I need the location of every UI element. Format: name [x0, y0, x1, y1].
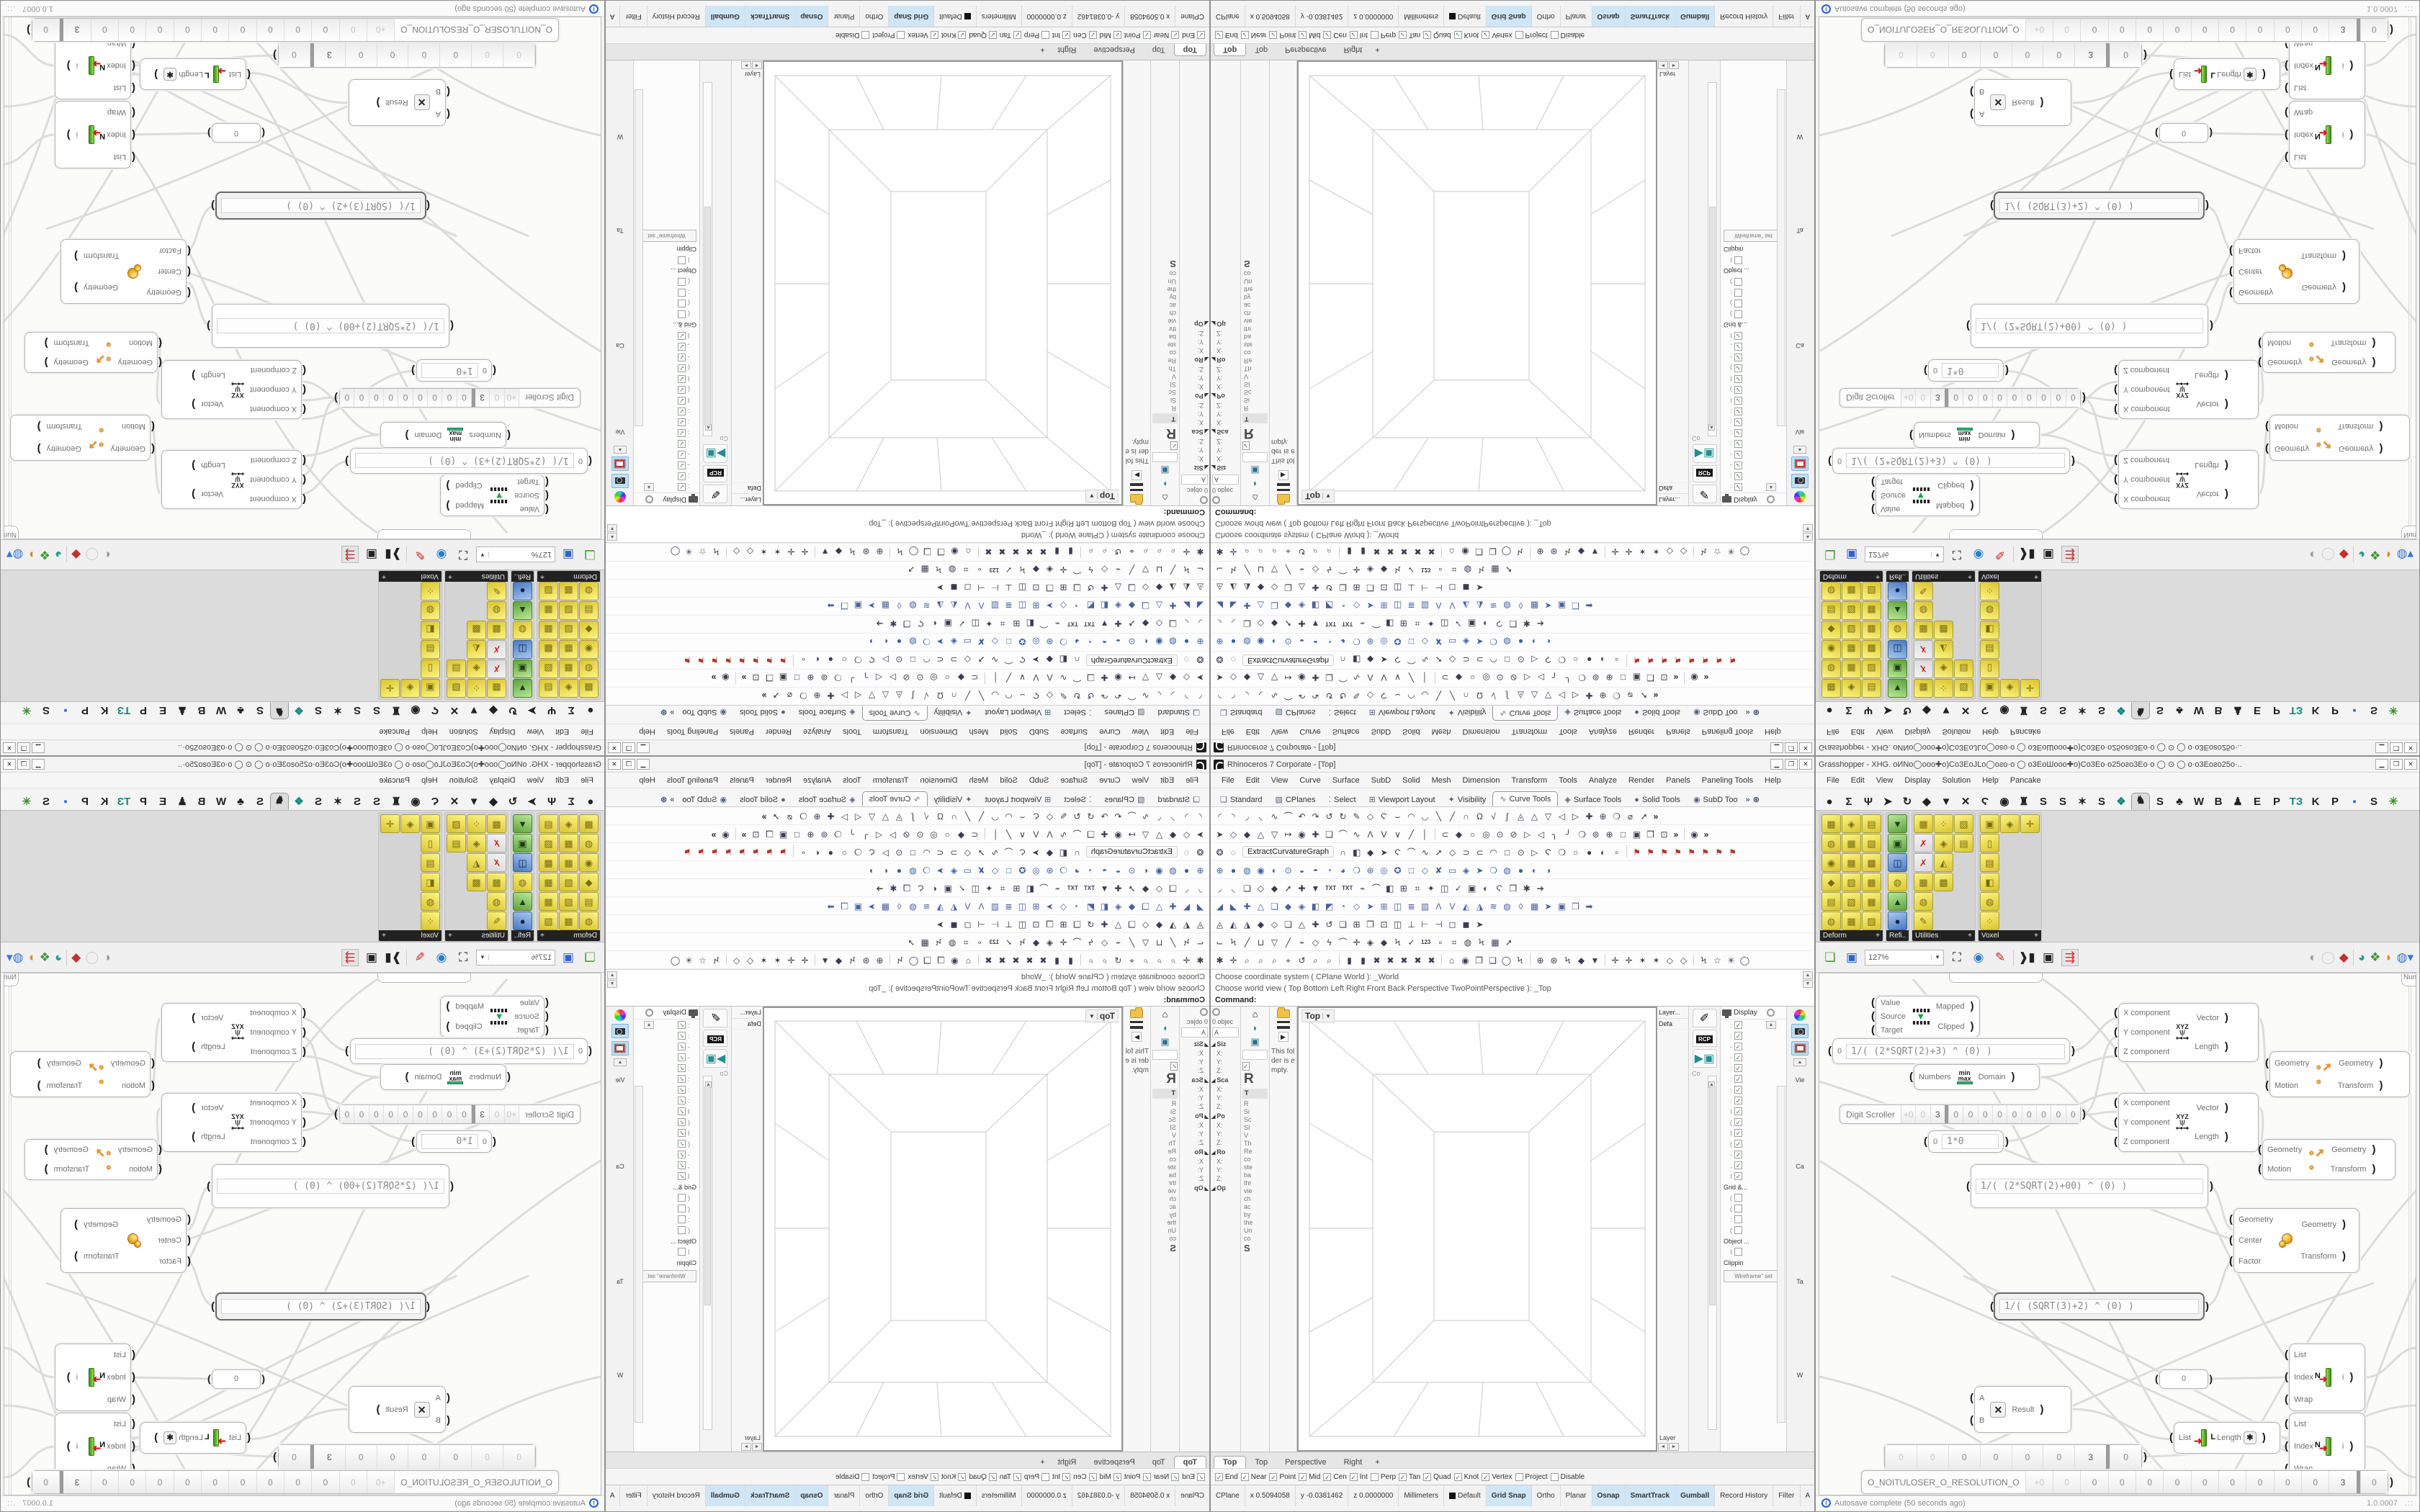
input-b[interactable]: B [431, 86, 445, 96]
output-length[interactable]: Length ✱ [2213, 1431, 2261, 1445]
maximize-button[interactable]: ❐ [622, 742, 635, 753]
gh-plugin-tab-icon[interactable]: W [2190, 796, 2208, 810]
menu-item-view[interactable]: View [1871, 726, 1899, 738]
gh-plugin-tab-icon[interactable]: TЗ [2287, 702, 2305, 716]
help-search-field[interactable] [1242, 1050, 1268, 1060]
palette-icon[interactable]: ◍ [1821, 582, 1841, 600]
toolbar-icon[interactable]: ⌁ [1296, 564, 1308, 577]
palette-icon[interactable]: ✗ [1914, 834, 1933, 852]
osnap-vertex[interactable]: ✓Vertex [1482, 1473, 1512, 1481]
toolbar-icon[interactable]: ⌒ [1370, 618, 1382, 631]
toolbar-icon[interactable]: ⌣ [1391, 809, 1404, 823]
toolbar-icon[interactable]: ▽ [1139, 672, 1152, 685]
boxedit-axis-field[interactable]: X: [1180, 1049, 1209, 1058]
gear-icon[interactable] [1767, 1009, 1775, 1017]
toolbar-icon[interactable]: ➚ [1433, 845, 1445, 859]
toolbar-icon[interactable]: ☆ [696, 546, 709, 559]
input-geometry[interactable]: Geometry [114, 1145, 157, 1155]
palette-icon[interactable]: ▩ [539, 853, 558, 872]
toolbar-icon[interactable]: ✚ [1241, 899, 1253, 913]
rhino-tab-standard[interactable]: ❏Standard [1151, 706, 1206, 719]
side-tab-view[interactable]: Vie [607, 428, 633, 436]
toolbar-icon[interactable]: ⊛ [1364, 863, 1376, 877]
toolbar-icon[interactable]: ⚑ [709, 845, 721, 859]
zero-panel[interactable]: 0 [212, 123, 261, 143]
digit-cell[interactable]: 0 [2066, 389, 2080, 407]
gh-plugin-tab-icon[interactable]: K [2306, 702, 2325, 716]
zoom-extents-icon[interactable]: ⛶ [454, 949, 472, 966]
toolbar-icon[interactable]: TXT [1340, 881, 1355, 895]
menu-item-help[interactable]: Help [1760, 775, 1786, 786]
toolbar-icon[interactable]: ⊙ [1515, 845, 1527, 859]
toolbar-icon[interactable]: ✚ [1309, 582, 1322, 595]
checkbox[interactable] [678, 1248, 686, 1256]
toolbar-icon[interactable]: ∿ [1268, 690, 1281, 703]
toolbar-icon[interactable]: ◆ [1030, 935, 1042, 949]
boxedit-section-op[interactable]: Op [1211, 319, 1240, 329]
toolbar-icon[interactable]: Ϟ [1180, 935, 1193, 949]
toolbar-icon[interactable]: ◞ [1167, 809, 1179, 823]
input-geometry[interactable]: Geometry [2234, 287, 2277, 297]
toolbar-icon[interactable]: ◆ [1282, 899, 1294, 913]
toolbar-icon[interactable]: ● [825, 845, 837, 859]
menu-item-file[interactable]: File [1180, 775, 1204, 786]
expression-code[interactable]: 1/( (2*SQRT(2)+00) ^ (0) ) [217, 1179, 444, 1194]
digit-cell[interactable]: 0 [2136, 1471, 2163, 1493]
digit-cell[interactable]: 0 [279, 1445, 310, 1469]
display-mode-box[interactable]: Wireframe" set [1724, 230, 1783, 242]
toolbar-icon[interactable]: Ϟ [1561, 953, 1574, 967]
boxedit-section-siz[interactable]: Siz [1211, 1039, 1240, 1049]
display-option-row[interactable]: ( [634, 1225, 699, 1236]
toolbar-icon[interactable]: ◯ [669, 546, 681, 559]
display-blob-blue-icon[interactable]: ◍▾ [6, 950, 23, 965]
palette-icon[interactable]: ▤ [421, 853, 440, 872]
toolbar-icon[interactable]: ▣ [1631, 672, 1643, 685]
menu-item-mesh[interactable]: Mesh [964, 726, 993, 738]
toolbar-icon[interactable]: Ϛ [1016, 654, 1028, 667]
display-option-row[interactable]: :✓ [634, 1084, 699, 1095]
toolbar-icon[interactable]: ⊣ [975, 582, 987, 595]
menu-item-subd[interactable]: SubD [1024, 726, 1054, 738]
toolbar-icon[interactable]: ◆ [1255, 582, 1267, 595]
toolbar-icon[interactable]: ⚑ [750, 654, 762, 667]
toolbar-icon[interactable]: ≋ [920, 600, 933, 613]
toolbar-icon[interactable]: ⌀ [784, 809, 796, 823]
side-tab-ta[interactable]: Ta [607, 1278, 633, 1285]
toolbar-icon[interactable]: ∫ [907, 690, 919, 703]
toolbar-icon[interactable]: ✶ [758, 953, 770, 967]
toolbar-icon[interactable]: ◌ [1180, 845, 1193, 859]
toolbar-icon[interactable]: ◟ [1180, 881, 1193, 895]
toolbar-icon[interactable]: ● [893, 636, 905, 649]
rhino-tab-surface-tools[interactable]: ◈Surface Tools [792, 706, 862, 719]
osnap-vertex[interactable]: ✓Vertex [907, 32, 938, 40]
toolbar-icon[interactable]: » [1652, 809, 1660, 823]
toolbar-icon[interactable]: ⊙ [1126, 636, 1138, 649]
palette-icon[interactable]: ⁘ [1934, 679, 1953, 698]
checkbox[interactable] [1734, 1205, 1742, 1212]
checkbox[interactable]: ✓ [1113, 32, 1121, 40]
menu-item-analyze[interactable]: Analyze [1584, 726, 1622, 738]
toolbar-icon[interactable]: ◇ [1044, 809, 1056, 823]
toolbar-icon[interactable]: ☆ [1711, 546, 1724, 559]
toolbar-icon[interactable]: Ϟ [1698, 953, 1710, 967]
toolbar-icon[interactable]: ⊕ [811, 690, 823, 703]
digit-cell[interactable]: 0 [2136, 19, 2163, 41]
palette-icon[interactable]: ⁘ [421, 582, 440, 600]
toolbar-icon[interactable]: ✖ [1384, 546, 1397, 559]
toolbar-icon[interactable]: ❐ [763, 827, 776, 841]
toolbar-icon[interactable]: ◆ [1378, 935, 1390, 949]
digit-cell[interactable]: 0 [174, 19, 202, 41]
boxedit-axis-field[interactable]: Z: [1180, 401, 1209, 410]
toolbar-icon[interactable]: ❏ [1126, 917, 1138, 931]
command-prompt[interactable]: Command: [610, 994, 1205, 1006]
rhino-tab-viewport-layout[interactable]: ⊞Viewport Layout [1363, 706, 1442, 719]
side-tab-camera[interactable]: Ca [607, 1163, 633, 1170]
checkbox[interactable]: ✓ [1062, 1473, 1070, 1481]
digit-cell[interactable]: 0 [1885, 43, 1917, 67]
expression-component-3-selected[interactable]: 1/( (SQRT(3)+2) ^ (0) ) [215, 1292, 426, 1320]
help-checkbox[interactable]: ✓ [1242, 1062, 1250, 1071]
gh-plugin-tab-icon[interactable]: ✳ [17, 702, 36, 717]
boxedit-axis-field[interactable]: X: [1211, 1121, 1240, 1130]
menu-item-edit[interactable]: Edit [550, 726, 574, 738]
toolbar-icon[interactable]: ◇ [1268, 582, 1281, 595]
digit-cell[interactable]: 0 [257, 19, 284, 41]
osnap-point[interactable]: ✓Point [1269, 32, 1296, 40]
checkbox[interactable]: ✓ [678, 1064, 686, 1072]
toolbar-icon[interactable]: ∩ [1337, 654, 1349, 667]
viewport-tab-top[interactable]: Top [1174, 44, 1206, 56]
checkbox[interactable]: ✓ [989, 1473, 997, 1481]
toolbar-icon[interactable]: ∿ [1057, 827, 1070, 841]
vector-xyz-component-1[interactable]: X component Y component Z component XYZ\… [2118, 450, 2259, 509]
gh-plugin-tab-icon[interactable]: S [2365, 702, 2383, 716]
toolbar-icon[interactable]: TXT [1065, 881, 1080, 895]
toolbar-icon[interactable]: ◎ [928, 827, 940, 841]
expand-button[interactable]: ▶ [1132, 1032, 1142, 1042]
palette-label[interactable]: Utilities+ [445, 571, 508, 582]
toolbar-icon[interactable]: ◟ [1153, 690, 1165, 703]
boxedit-axis-field[interactable]: X: [1180, 1121, 1209, 1130]
toolbar-icon[interactable]: ▮ [1051, 953, 1063, 967]
toolbar-icon[interactable]: ⌁ [1052, 618, 1064, 631]
toolbar-icon[interactable]: ⊡ [750, 827, 762, 841]
osnap-end[interactable]: ✓End [1182, 1473, 1205, 1481]
vertical-scrollbar[interactable]: ▲ [703, 1076, 712, 1430]
toolbar-icon[interactable]: ⊥ [1003, 917, 1015, 931]
menu-item-render[interactable]: Render [1623, 726, 1659, 738]
toolbar-icon[interactable]: ◁ [873, 672, 885, 685]
toolbar-icon[interactable]: ➔ [1534, 881, 1546, 895]
toolbar-icon[interactable]: ◔ [1085, 636, 1097, 649]
toolbar-icon[interactable]: ⌕ [1268, 546, 1281, 559]
toolbar-icon[interactable]: ➤ [1030, 654, 1042, 667]
digit-cell[interactable]: 0 [384, 389, 398, 407]
checkbox[interactable]: ✓ [678, 1161, 686, 1169]
boxedit-axis-field[interactable]: Y: [1180, 338, 1209, 346]
toolbar-icon[interactable]: ◇ [1153, 618, 1165, 631]
digit-scroller-upper[interactable]: 00000030 [1884, 1444, 2142, 1470]
toolbar-icon[interactable]: ◍ [1241, 863, 1253, 877]
scroll-up-button[interactable]: ▲ [1766, 1021, 1776, 1029]
checkbox[interactable]: ✓ [1423, 32, 1431, 40]
toolbar-icon[interactable]: ◇ [1309, 564, 1322, 577]
scroller-thumb[interactable] [60, 19, 63, 41]
output-geometry[interactable]: Geometry [42, 444, 87, 454]
digit-cell[interactable]: 3 [2074, 43, 2106, 67]
menu-item-file[interactable]: File [575, 726, 599, 738]
camera-panel-icon[interactable] [1791, 474, 1809, 488]
checkbox[interactable]: ✓ [1171, 1473, 1179, 1481]
toolbar-icon[interactable]: ▣ [1556, 899, 1568, 913]
toolbar-icon[interactable]: ╲ [1433, 809, 1445, 823]
gh-plugin-tab-icon[interactable]: ◉ [406, 702, 425, 717]
gh-plugin-tab-icon[interactable]: Ψ [1859, 702, 1878, 716]
digit-cell[interactable]: 0 [457, 1105, 472, 1123]
toolbar-icon[interactable]: △ [1112, 917, 1124, 931]
menu-item-file[interactable]: File [1180, 726, 1204, 738]
expression-component-3-selected[interactable]: 1/( (SQRT(3)+2) ^ (0) ) [215, 192, 426, 220]
toolbar-icon[interactable]: ✳ [1725, 953, 1737, 967]
camera-panel-icon[interactable] [611, 1024, 629, 1038]
toolbar-icon[interactable]: Λ [975, 600, 987, 613]
toolbar-icon[interactable]: ◜ [1194, 809, 1206, 823]
scroll-right-button[interactable]: ► [1669, 61, 1679, 69]
checkbox[interactable]: ✓ [678, 1107, 686, 1115]
toolbar-icon[interactable]: ❏ [1282, 917, 1294, 931]
toolbar-icon[interactable]: ◇ [1446, 845, 1458, 859]
status-y-0-0381462[interactable]: y -0.0381462 [1296, 1485, 1348, 1506]
vector-xyz-component-2[interactable]: X component Y component Z component XYZ\… [2118, 360, 2259, 419]
palette-icon[interactable]: ▤ [1821, 601, 1841, 620]
toolbar-icon[interactable]: ◯ [1500, 953, 1512, 967]
toolbar-icon[interactable]: ▽ [1268, 935, 1281, 949]
toolbar-icon[interactable]: ◡ [989, 809, 1001, 823]
toolbar-icon[interactable]: Ϛ [1391, 845, 1404, 859]
checkbox[interactable]: ✓ [678, 483, 686, 491]
toolbar-icon[interactable]: ◞ [1214, 881, 1226, 895]
toolbar-icon[interactable]: ➔ [874, 881, 886, 895]
toolbar-icon[interactable]: ◆ [1575, 953, 1587, 967]
toolbar-icon[interactable]: ⌒ [1003, 654, 1015, 667]
toolbar-icon[interactable]: ◧ [1098, 600, 1111, 613]
toolbar-icon[interactable]: ◭ [1460, 600, 1472, 613]
gh-plugin-tab-icon[interactable]: ♜ [387, 795, 405, 810]
toolbar-icon[interactable]: ❐ [1569, 899, 1582, 913]
toolbar-icon[interactable]: ▽ [1139, 564, 1152, 577]
toolbar-icon[interactable]: ⊔ [1255, 935, 1267, 949]
toolbar-icon[interactable]: ◬ [1515, 809, 1527, 823]
toolbar-icon[interactable]: ⊚ [1590, 672, 1602, 685]
digit-cell[interactable]: 0 [2080, 1471, 2107, 1493]
command-prompt[interactable]: Command: [610, 506, 1205, 518]
toolbar-icon[interactable]: ◇ [1057, 899, 1070, 913]
toolbar-icon[interactable]: ◧ [1024, 881, 1036, 895]
scale-component[interactable]: Geometry Center Factor Geometry Transfor… [2233, 239, 2359, 304]
gh-plugin-tab-icon[interactable]: Σ [562, 702, 581, 716]
toolbar-icon[interactable]: Ω [934, 690, 946, 703]
palette-icon[interactable]: ▦ [1842, 640, 1861, 659]
toolbar-icon[interactable]: △ [1528, 690, 1541, 703]
toolbar-icon[interactable]: ⊛ [1044, 863, 1056, 877]
menu-item-dimension[interactable]: Dimension [915, 775, 963, 786]
toolbar-icon[interactable]: Ϛ [1542, 845, 1554, 859]
osnap-disable[interactable]: Disable [835, 32, 869, 40]
boxedit-axis-field[interactable]: Z: [1211, 1102, 1240, 1111]
toolbar-icon[interactable]: ❏ [1487, 953, 1499, 967]
checkbox[interactable]: ✓ [1734, 386, 1742, 394]
rcp-tab[interactable]: RCP [704, 1030, 728, 1047]
checkbox[interactable]: ✓ [1734, 397, 1742, 405]
input-geometry[interactable]: Geometry [2234, 1215, 2277, 1225]
toolbar-icon[interactable]: ∘ [1610, 654, 1623, 667]
input-x-component[interactable]: X component [246, 1098, 301, 1108]
rhino-tab-subd-too[interactable]: ◉SubD Too [1687, 706, 1744, 719]
toolbar-icon[interactable]: ╯ [1562, 827, 1574, 841]
palette-icon[interactable]: ✗ [487, 640, 506, 659]
toolbar-icon[interactable]: ◁ [1535, 827, 1547, 841]
toolbar-icon[interactable]: ❐ [1507, 881, 1519, 895]
digit-cell[interactable]: 0 [1948, 389, 1963, 407]
display-option-row[interactable]: :✓ [1721, 1030, 1786, 1041]
toolbar-icon[interactable]: ◕ [1337, 636, 1349, 649]
viewport-tab-top[interactable]: Top [1214, 44, 1246, 56]
status-y-0-0381462[interactable]: y -0.0381462 [1296, 6, 1348, 27]
gh-plugin-tab-icon[interactable]: ↻ [503, 702, 522, 717]
toolbar-icon[interactable]: ◟ [1255, 809, 1267, 823]
toolbar-icon[interactable]: ⌒ [1038, 881, 1050, 895]
toolbar-icon[interactable]: ▮ [1343, 546, 1355, 559]
toolbar-icon[interactable]: ◮ [1241, 917, 1253, 931]
toolbar-icon[interactable]: ✘ [975, 863, 987, 877]
status-smarttrack[interactable]: SmartTrack [1626, 6, 1675, 27]
toolbar-icon[interactable]: ◫ [1016, 917, 1028, 931]
input-index[interactable]: Index [102, 1372, 130, 1382]
gh-plugin-tab-icon[interactable]: ♟ [2228, 795, 2247, 810]
status-x-0-5094058[interactable]: x 0.5094058 [1245, 6, 1296, 27]
digit-cell[interactable]: 0 [2274, 1471, 2301, 1493]
osnap-cen[interactable]: ✓Cen [1073, 32, 1096, 40]
digit-cell[interactable]: 0 [284, 1471, 312, 1493]
toolbar-icon[interactable]: □ [1501, 845, 1513, 859]
toolbar-icon[interactable]: ◧ [1350, 654, 1363, 667]
checkbox[interactable] [1515, 32, 1523, 40]
zero-panel[interactable]: 0 [212, 1369, 261, 1389]
osnap-project[interactable]: Project [872, 1473, 905, 1481]
toolbar-icon[interactable]: ➡ [825, 899, 837, 913]
rhino-tab-surface-tools[interactable]: ◈Surface Tools [792, 793, 862, 806]
input-motion[interactable]: Motion [2270, 422, 2313, 432]
pencil-tab[interactable]: ✐ [1693, 1009, 1717, 1027]
digit-cell[interactable]: 0 [440, 1445, 472, 1469]
output-transform[interactable]: Transform [50, 1164, 94, 1174]
toolbar-icon[interactable]: ⌒ [1126, 690, 1138, 703]
toolbar-icon[interactable]: ✚ [1167, 600, 1179, 613]
scroll-left-button[interactable]: ◄ [752, 1443, 762, 1451]
toolbar-icon[interactable]: ▮ [1051, 546, 1063, 559]
toolbar-icon[interactable]: ✖ [1384, 953, 1397, 967]
checkbox[interactable]: ✓ [1734, 1129, 1742, 1137]
boxedit-section-op[interactable]: Op [1180, 1183, 1209, 1193]
menu-item-tools[interactable]: Tools [1554, 775, 1582, 786]
toolbar-icon[interactable]: ⚑ [1631, 654, 1643, 667]
menu-item-solid[interactable]: Solid [995, 726, 1022, 738]
palette-icon[interactable]: ▤ [539, 679, 558, 698]
toolbar-icon[interactable]: ⚑ [1685, 845, 1698, 859]
toolbar-icon[interactable]: ◓ [1098, 863, 1111, 877]
digit-cell[interactable]: 0 [472, 43, 503, 67]
palette-icon[interactable]: ✗ [487, 834, 506, 852]
toolbar-icon[interactable]: ✚ [1296, 618, 1308, 631]
toolbar-icon[interactable]: ⌒ [1071, 935, 1083, 949]
toolbar-icon[interactable]: □ [1617, 827, 1629, 841]
rhino-titlebar[interactable]: Rhinoceros 7 Corporate - [Top] ▁ ❐ ✕ [1211, 757, 1814, 773]
display-option-row[interactable]: (✓ [634, 363, 699, 374]
help-search-field[interactable] [1152, 452, 1178, 462]
osnap-near[interactable]: ✓Near [1241, 1473, 1267, 1481]
gh-plugin-tab-icon[interactable]: Ψ [542, 796, 561, 810]
menu-item-mesh[interactable]: Mesh [964, 775, 993, 786]
camera-icon[interactable]: ▣ [1160, 464, 1171, 476]
toolbar-icon[interactable]: ◫ [1391, 899, 1404, 913]
osnap-knot[interactable]: ✓Knot [941, 1473, 967, 1481]
palette-icon[interactable]: ⁘ [421, 912, 440, 930]
gh-plugin-tab-icon[interactable]: B [192, 796, 211, 810]
toolbar-icon[interactable]: ◐ [1597, 654, 1609, 667]
palette-icon[interactable]: ✗ [1914, 640, 1933, 659]
boxedit-section-ro[interactable]: Ro [1211, 355, 1240, 365]
gh-plugin-tab-icon[interactable]: S [2034, 702, 2053, 716]
side-tab-camera[interactable]: Ca [607, 342, 633, 349]
toolbar-icon[interactable]: ∿ [1139, 809, 1152, 823]
boxedit-axis-field[interactable]: Z: [1211, 401, 1240, 410]
toolbar-icon[interactable]: ◫ [1391, 917, 1404, 931]
toolbar-icon[interactable]: │ [1419, 827, 1431, 841]
toolbar-icon[interactable]: ∫ [1501, 690, 1513, 703]
checkbox[interactable]: ✓ [1269, 32, 1277, 40]
checkbox[interactable]: ✓ [1399, 32, 1407, 40]
menu-item-help[interactable]: Help [416, 726, 443, 738]
digit-cell[interactable]: 0 [1948, 43, 1980, 67]
toolbar-icon[interactable]: ◬ [1194, 582, 1206, 595]
toolbar-icon[interactable]: Λ [1044, 827, 1056, 841]
toolbar-icon[interactable]: ⌕ [1167, 953, 1179, 967]
scrollbar-thumb[interactable] [1709, 1086, 1716, 1305]
output-vector[interactable]: Vector [197, 1013, 230, 1023]
side-tab-w[interactable]: W [607, 1372, 633, 1379]
folder-icon[interactable] [1277, 1009, 1290, 1018]
checkbox[interactable]: ✓ [1734, 1118, 1742, 1126]
toolbar-icon[interactable]: ⚑ [1658, 845, 1670, 859]
toolbar-icon[interactable]: ◐ [811, 654, 823, 667]
toolbar-icon[interactable]: ❏ [1071, 582, 1083, 595]
toolbar-icon[interactable]: ∩ [948, 690, 960, 703]
toolbar-icon[interactable]: ◠ [1003, 690, 1015, 703]
checkbox[interactable]: ✓ [678, 462, 686, 469]
status-z-0-0000000[interactable]: z 0.0000000 [1021, 6, 1072, 27]
palette-icon[interactable]: ▨ [1862, 582, 1881, 600]
toolbar-icon[interactable]: ⌖ [1126, 953, 1138, 967]
toolbar-icon[interactable]: ▭ [962, 863, 974, 877]
palette-label[interactable]: Deform+ [1820, 930, 1883, 941]
output-transform[interactable]: Transform [79, 1251, 124, 1261]
digit-cell[interactable]: 0 [1980, 43, 2012, 67]
palette-label[interactable]: Refi.. [1886, 571, 1909, 582]
rhino-tab-subd-too[interactable]: ◉SubD Too [676, 706, 733, 719]
